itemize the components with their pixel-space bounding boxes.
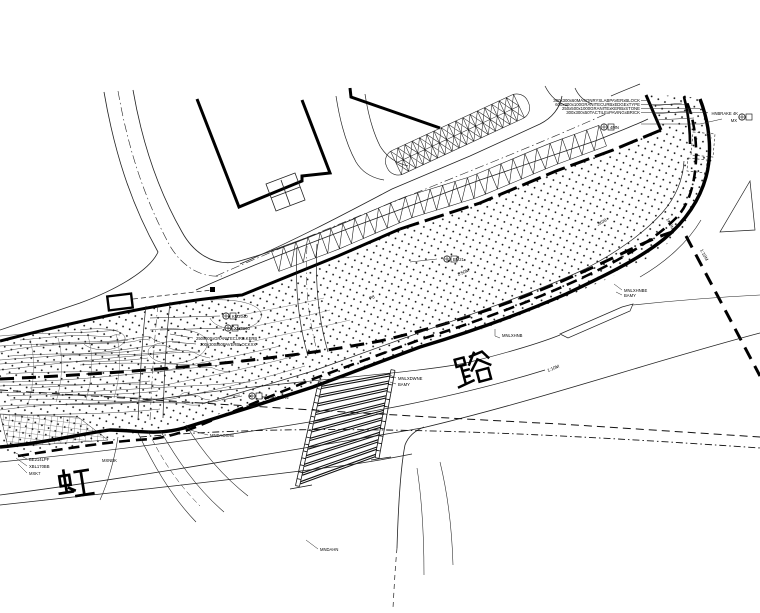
svg-text:HNBRAKE 4K: HNBRAKE 4K: [711, 111, 738, 116]
svg-text:MXK7: MXK7: [29, 471, 41, 476]
svg-text:RNXDAOBAN: RNXDAOBAN: [262, 395, 289, 400]
svg-text:BE214LPF: BE214LPF: [29, 457, 50, 462]
svg-text:XNTB60: XNTB60: [234, 326, 250, 331]
svg-text:MNDAOXHE: MNDAOXHE: [210, 433, 234, 438]
svg-text:BAMY: BAMY: [624, 293, 636, 298]
svg-text:250x600xGRANITECURB.KERB: 250x600xGRANITECURB.KERB: [196, 336, 257, 341]
svg-text:300x300x60PAVERBLOCKXX: 300x300x60PAVERBLOCKXX: [200, 342, 256, 347]
svg-text:4MN: 4MN: [610, 125, 619, 130]
svg-text:XBL170BB: XBL170BB: [29, 464, 50, 469]
svg-text:MX: MX: [731, 118, 737, 123]
svg-text:MNDAHN: MNDAHN: [320, 547, 338, 552]
svg-text:MNLXHNB: MNLXHNB: [502, 333, 523, 338]
svg-text:300x300x50TACTILExPAVINGxBRICK: 300x300x50TACTILExPAVINGxBRICK: [566, 110, 640, 115]
svg-text:KM2040: KM2040: [232, 314, 248, 319]
svg-text:MNLXDWNE: MNLXDWNE: [398, 376, 423, 381]
svg-text:BM21: BM21: [453, 257, 465, 262]
svg-text:MXNBK: MXNBK: [102, 458, 117, 463]
svg-text:BAMY: BAMY: [398, 382, 410, 387]
